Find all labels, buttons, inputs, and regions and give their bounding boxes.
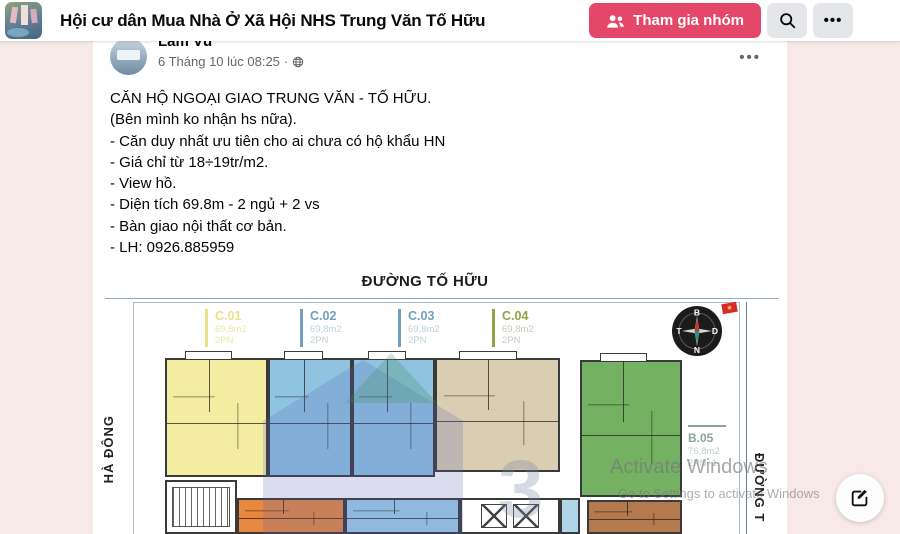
unit-area: 69,8m2 [215, 324, 247, 335]
meta-separator: · [284, 54, 288, 69]
post-text: CĂN HỘ NGOẠI GIAO TRUNG VĂN - TỐ HỮU. (B… [110, 88, 730, 258]
unit-label-c02: C.02 69,8m2 2PN [300, 309, 342, 347]
globe-icon [292, 56, 304, 68]
unit-area: 69,8m2 [310, 324, 342, 335]
stair-steps [172, 487, 230, 527]
svg-text:D: D [712, 326, 718, 336]
plan-unit-orange [237, 498, 345, 534]
post-author-avatar[interactable] [110, 41, 147, 75]
post-line: CĂN HỘ NGOẠI GIAO TRUNG VĂN - TỐ HỮU. [110, 88, 730, 109]
plan-unit-c01 [165, 358, 268, 477]
unit-beds: 2PN [408, 335, 440, 346]
balcony [185, 351, 233, 360]
balcony [284, 351, 322, 360]
unit-beds: 2PN+1 [688, 458, 726, 470]
balcony [600, 353, 647, 362]
group-title[interactable]: Hội cư dân Mua Nhà Ở Xã Hội NHS Trung Vă… [60, 11, 485, 31]
people-plus-icon [606, 13, 625, 29]
unit-name: C.03 [408, 309, 440, 324]
avatar-tower-shape [10, 7, 18, 24]
post-line: - Diện tích 69.8m - 2 ngủ + 2 vs [110, 194, 730, 215]
post-meta: 6 Tháng 10 lúc 08:25 · [158, 54, 304, 69]
search-button[interactable] [767, 3, 807, 38]
unit-label-b05: B.05 76,8m2 2PN+1 [688, 425, 726, 470]
unit-label-c01: C.01 69,8m2 2PN [205, 309, 247, 347]
svg-text:B: B [694, 308, 700, 318]
plan-unit-c03 [352, 358, 435, 477]
post-timestamp[interactable]: 6 Tháng 10 lúc 08:25 [158, 54, 280, 69]
unit-name: C.01 [215, 309, 247, 324]
elevator-shaft [481, 504, 507, 528]
post-line: - View hồ. [110, 173, 730, 194]
svg-text:N: N [694, 345, 700, 355]
unit-area: 69,8m2 [408, 324, 440, 335]
plan-unit-c04 [435, 358, 560, 472]
post-line: - Bàn giao nội thất cơ bản. [110, 216, 730, 237]
balcony [368, 351, 406, 360]
unit-beds: 2PN [310, 335, 342, 346]
unit-beds: 2PN [502, 335, 534, 346]
group-avatar[interactable] [5, 2, 42, 39]
avatar-tower-shape [30, 9, 37, 24]
post-author-name[interactable]: Lâm Vũ [158, 41, 212, 50]
unit-beds: 2PN [215, 335, 247, 346]
unit-area: 69,8m2 [502, 324, 534, 335]
post-line: - Giá chỉ từ 18÷19tr/m2. [110, 152, 730, 173]
elevator-shaft [513, 504, 539, 528]
post-card: Lâm Vũ 6 Tháng 10 lúc 08:25 · ••• CĂN HỘ… [93, 41, 787, 534]
unit-area: 76,8m2 [688, 446, 726, 458]
post-more-button[interactable]: ••• [739, 49, 761, 66]
compass-icon: B D N T [671, 305, 723, 357]
road-line-top [105, 298, 779, 299]
balcony [459, 351, 517, 360]
search-icon [779, 12, 796, 29]
avatar-water-shape [7, 28, 29, 37]
label-rule [688, 425, 726, 427]
post-line: - LH: 0926.885959 [110, 237, 730, 258]
svg-text:T: T [676, 326, 682, 336]
header-more-button[interactable]: ••• [813, 3, 853, 38]
plan-unit-brown [587, 500, 682, 534]
plan-unit-blue-bottom [345, 498, 460, 534]
elevator-core [460, 498, 560, 534]
header-actions: Tham gia nhóm ••• [589, 3, 853, 38]
plan-unit-b05 [580, 360, 682, 497]
plan-unit-c02 [268, 358, 352, 477]
road-line-right [746, 302, 747, 534]
post-line: (Bên mình ko nhận hs nữa). [110, 109, 730, 130]
stairwell [165, 480, 237, 534]
avatar-tower-shape [21, 5, 28, 25]
unit-label-c04: C.04 69,8m2 2PN [492, 309, 534, 347]
unit-label-c03: C.03 69,8m2 2PN [398, 309, 440, 347]
group-header: Hội cư dân Mua Nhà Ở Xã Hội NHS Trung Vă… [0, 0, 900, 41]
ellipsis-icon: ••• [739, 49, 761, 66]
compose-pencil-icon [849, 487, 871, 509]
floorplan-image[interactable]: ĐƯỜNG TỐ HỮU C.01 69,8m2 2PN C.02 69,8m2… [93, 265, 787, 534]
street-name-left: HÀ ĐÔNG [101, 415, 116, 483]
flag-star: ★ [726, 304, 733, 312]
street-name-right: ĐƯỜNG T [752, 453, 767, 522]
unit-name: C.04 [502, 309, 534, 324]
unit-name: B.05 [688, 431, 726, 446]
street-name-top: ĐƯỜNG TỐ HỮU [93, 273, 757, 290]
unit-name: C.02 [310, 309, 342, 324]
ellipsis-icon: ••• [824, 12, 843, 29]
post-line: - Căn duy nhất ưu tiên cho ai chưa có hộ… [110, 131, 730, 152]
join-group-button[interactable]: Tham gia nhóm [589, 3, 761, 38]
compose-fab-button[interactable] [836, 474, 884, 522]
join-group-label: Tham gia nhóm [633, 12, 744, 29]
plan-unit-blue-strip [560, 498, 580, 534]
